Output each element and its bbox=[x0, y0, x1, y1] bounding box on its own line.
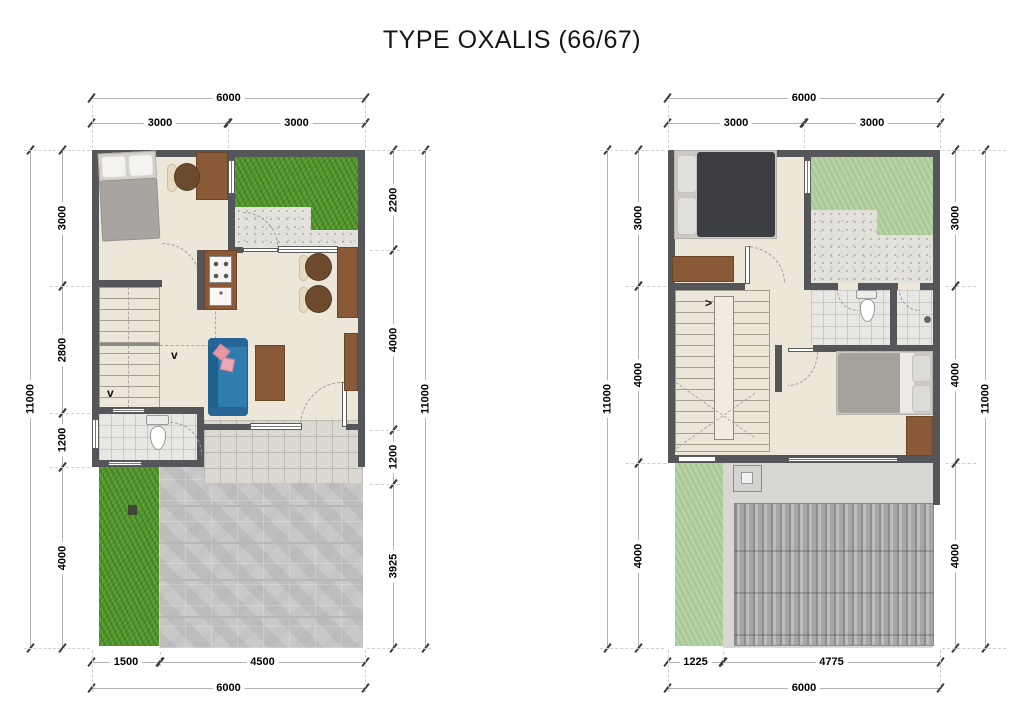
extension-line bbox=[24, 150, 90, 151]
dim-label: 3000 bbox=[950, 202, 963, 234]
extension-line bbox=[940, 650, 941, 692]
extension-line bbox=[228, 118, 229, 148]
extension-line bbox=[92, 650, 93, 692]
extension-line bbox=[942, 648, 1006, 649]
sofa-armrest bbox=[208, 338, 248, 347]
floor-plan-canvas: TYPE OXALIS (66/67) bbox=[0, 0, 1024, 722]
interior-wall bbox=[92, 407, 204, 414]
dim-label: 3000 bbox=[57, 202, 70, 234]
dim-right-seg: 2200 bbox=[393, 150, 394, 250]
cabinet bbox=[906, 416, 933, 456]
extension-line bbox=[804, 118, 805, 148]
roof-joint bbox=[734, 550, 934, 552]
extension-line bbox=[370, 250, 400, 251]
dim-left-seg: 1200 bbox=[62, 413, 63, 467]
sofa-pillow bbox=[220, 357, 235, 372]
dim-label: 1225 bbox=[679, 656, 711, 669]
dim-right-total: 11000 bbox=[425, 150, 426, 648]
extension-line bbox=[942, 150, 1006, 151]
interior-wall bbox=[197, 250, 204, 310]
dim-label: 4775 bbox=[815, 656, 847, 669]
floor2-roof-garden-gravel bbox=[811, 235, 933, 283]
window bbox=[92, 419, 99, 449]
pillow bbox=[912, 355, 931, 382]
shower-head bbox=[924, 316, 931, 323]
dim-label: 3000 bbox=[720, 117, 752, 130]
window bbox=[788, 457, 898, 462]
driveway-joint bbox=[159, 616, 363, 618]
tv-console bbox=[344, 333, 358, 391]
page-title: TYPE OXALIS (66/67) bbox=[0, 26, 1024, 55]
bed-duvet bbox=[697, 152, 775, 237]
dim-label: 4500 bbox=[246, 656, 278, 669]
step-arrow-right-icon: > bbox=[705, 298, 712, 308]
interior-wall bbox=[775, 345, 782, 392]
dim-left-total: 11000 bbox=[30, 150, 31, 648]
extension-line bbox=[365, 100, 366, 148]
dim-label: 1200 bbox=[388, 441, 401, 473]
dim-right-seg: 4000 bbox=[393, 250, 394, 430]
window bbox=[250, 423, 302, 430]
extension-line bbox=[50, 286, 90, 287]
toilet-tank bbox=[856, 290, 877, 299]
dim-left-seg: 2800 bbox=[62, 286, 63, 413]
extension-line bbox=[946, 286, 976, 287]
extension-line bbox=[160, 652, 161, 666]
dim-left-seg: 4000 bbox=[62, 467, 63, 648]
bed-double-second bbox=[836, 351, 933, 415]
bathroom-divider-wall bbox=[890, 290, 897, 345]
dim-top-seg: 3000 bbox=[804, 123, 940, 124]
extension-line bbox=[370, 484, 400, 485]
step-arrow-down-icon: v bbox=[107, 388, 114, 398]
desk bbox=[196, 152, 228, 200]
bed-double-master bbox=[674, 150, 777, 239]
extension-line bbox=[946, 463, 976, 464]
interior-wall bbox=[668, 283, 745, 290]
driveway-joint bbox=[159, 505, 363, 507]
dim-label: 2800 bbox=[57, 333, 70, 365]
exterior-wall bbox=[933, 150, 940, 505]
dim-label: 6000 bbox=[212, 92, 244, 105]
dim-label: 1200 bbox=[57, 424, 70, 456]
dim-left-seg: 3000 bbox=[62, 150, 63, 286]
extension-line bbox=[24, 648, 90, 649]
dim-label: 4000 bbox=[633, 539, 646, 571]
bed-duvet bbox=[838, 353, 902, 413]
dining-chair bbox=[305, 285, 332, 313]
window bbox=[108, 461, 142, 466]
bed-duvet bbox=[99, 178, 160, 242]
interior-wall bbox=[92, 280, 162, 287]
window bbox=[228, 160, 235, 194]
extension-line bbox=[626, 286, 666, 287]
floor2-lower-roof-grass bbox=[675, 463, 723, 646]
floor1-driveway bbox=[159, 467, 363, 648]
dim-bottom-seg: 1500 bbox=[92, 662, 160, 663]
dim-label: 3000 bbox=[280, 117, 312, 130]
dim-right-seg: 4000 bbox=[955, 463, 956, 648]
dim-bottom-total: 6000 bbox=[92, 688, 365, 689]
sofa-armrest bbox=[208, 407, 248, 416]
roof-joint bbox=[734, 592, 934, 594]
dim-label: 4000 bbox=[633, 358, 646, 390]
dim-left-seg: 3000 bbox=[638, 150, 639, 286]
extension-line bbox=[626, 463, 666, 464]
extension-line bbox=[600, 648, 664, 649]
dim-right-seg: 1200 bbox=[393, 430, 394, 484]
extension-line bbox=[600, 150, 664, 151]
corrugated-roof bbox=[734, 503, 934, 646]
dim-top-seg: 3000 bbox=[228, 123, 365, 124]
pillow bbox=[101, 155, 127, 178]
door-leaf bbox=[243, 248, 278, 252]
window bbox=[804, 160, 811, 194]
step-arrow-down-icon: v bbox=[171, 350, 178, 360]
exterior-wall bbox=[358, 150, 365, 467]
dim-label: 4000 bbox=[388, 324, 401, 356]
floor1-front-yard-grass bbox=[99, 467, 159, 646]
dim-right-seg: 4000 bbox=[955, 286, 956, 463]
extension-line bbox=[92, 100, 93, 148]
toilet-tank bbox=[146, 415, 169, 425]
driveway-joint bbox=[159, 579, 363, 581]
outdoor-unit-grille bbox=[741, 472, 753, 484]
desk-chair bbox=[174, 163, 200, 191]
porch-wall bbox=[204, 424, 250, 430]
dim-label: 6000 bbox=[788, 682, 820, 695]
kitchen-sink bbox=[209, 287, 232, 306]
pillow bbox=[677, 155, 697, 193]
dim-label: 11000 bbox=[420, 380, 433, 418]
dim-label: 6000 bbox=[212, 682, 244, 695]
yard-drain bbox=[128, 505, 137, 515]
window bbox=[112, 408, 145, 413]
dim-bottom-seg: 4500 bbox=[160, 662, 365, 663]
dim-left-seg: 4000 bbox=[638, 286, 639, 463]
bathroom-wall bbox=[920, 283, 933, 290]
dining-table bbox=[337, 247, 358, 318]
stair-void-line bbox=[160, 345, 215, 346]
porch-wall bbox=[346, 424, 358, 430]
dim-label: 1500 bbox=[110, 656, 142, 669]
dim-top-seg: 3000 bbox=[668, 123, 804, 124]
dim-label: 3000 bbox=[856, 117, 888, 130]
dim-left-total: 11000 bbox=[607, 150, 608, 648]
extension-line bbox=[668, 100, 669, 148]
stove bbox=[209, 256, 232, 283]
dim-label: 4000 bbox=[950, 539, 963, 571]
dim-left-seg: 4000 bbox=[638, 463, 639, 648]
balcony-door-leaf bbox=[678, 456, 716, 462]
dim-label: 6000 bbox=[788, 92, 820, 105]
extension-line bbox=[365, 650, 366, 692]
extension-line bbox=[367, 150, 431, 151]
dim-bottom-seg: 4775 bbox=[723, 662, 940, 663]
dim-top-total: 6000 bbox=[92, 98, 365, 99]
dim-bottom-seg: 1225 bbox=[668, 662, 723, 663]
extension-line bbox=[723, 652, 724, 666]
window bbox=[278, 246, 338, 253]
floor2-roof-garden-gravel bbox=[811, 210, 877, 235]
dim-label: 11000 bbox=[602, 380, 615, 418]
roof-joint bbox=[734, 634, 934, 636]
dim-top-seg: 3000 bbox=[92, 123, 228, 124]
dim-top-total: 6000 bbox=[668, 98, 940, 99]
pillow bbox=[128, 154, 154, 177]
extension-line bbox=[367, 648, 431, 649]
extension-line bbox=[668, 650, 669, 692]
dining-chair bbox=[305, 253, 332, 281]
dim-label: 3000 bbox=[144, 117, 176, 130]
extension-line bbox=[50, 467, 90, 468]
bathroom-wall bbox=[858, 283, 898, 290]
dim-label: 11000 bbox=[980, 380, 993, 418]
dim-label: 3000 bbox=[633, 202, 646, 234]
dim-right-seg: 3000 bbox=[955, 150, 956, 286]
pillow bbox=[677, 197, 697, 235]
pillow bbox=[912, 385, 931, 412]
dim-label: 2200 bbox=[388, 184, 401, 216]
extension-line bbox=[370, 430, 400, 431]
dim-label: 11000 bbox=[25, 380, 38, 418]
coffee-table bbox=[255, 345, 285, 401]
stair-guide-line bbox=[128, 287, 129, 408]
extension-line bbox=[940, 100, 941, 148]
bathroom-wall bbox=[811, 283, 838, 290]
dim-label: 3925 bbox=[388, 550, 401, 582]
dresser bbox=[672, 256, 734, 282]
stair-landing-edge bbox=[99, 343, 160, 346]
dim-label: 4000 bbox=[950, 358, 963, 390]
dim-right-seg: 3925 bbox=[393, 484, 394, 648]
dim-bottom-total: 6000 bbox=[668, 688, 940, 689]
extension-line bbox=[50, 413, 90, 414]
bed-single bbox=[98, 150, 163, 243]
driveway-joint bbox=[159, 542, 363, 544]
dim-label: 4000 bbox=[57, 541, 70, 573]
dim-right-total: 11000 bbox=[985, 150, 986, 648]
